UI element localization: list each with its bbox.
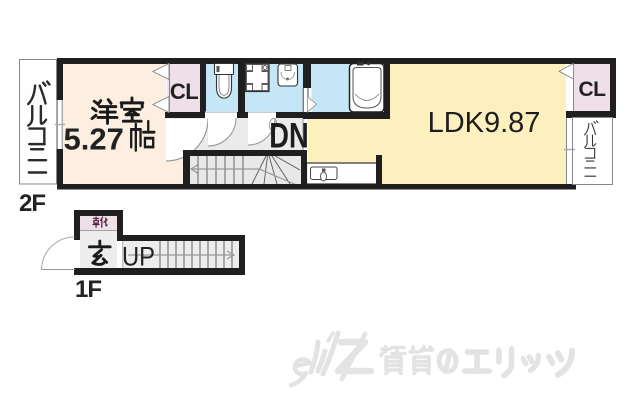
svg-text:LDK9.87: LDK9.87 (428, 107, 541, 139)
svg-text:CL: CL (579, 78, 607, 101)
svg-text:5.27: 5.27 (64, 122, 124, 157)
svg-text:2F: 2F (19, 190, 45, 217)
svg-text:CL: CL (170, 79, 198, 104)
svg-text:DN: DN (269, 116, 308, 155)
svg-text:UP: UP (122, 242, 155, 272)
svg-text:1F: 1F (75, 276, 101, 303)
